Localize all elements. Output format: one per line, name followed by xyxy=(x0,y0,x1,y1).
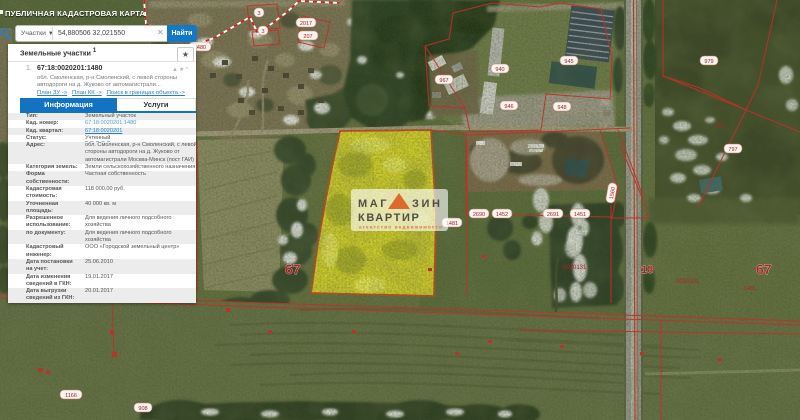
svg-text:797: 797 xyxy=(728,147,737,153)
svg-text:979: 979 xyxy=(704,59,713,65)
svg-text:агентство недвижимости: агентство недвижимости xyxy=(359,226,443,231)
svg-text:967: 967 xyxy=(439,78,448,84)
svg-text:2691: 2691 xyxy=(547,212,559,218)
svg-text:67: 67 xyxy=(756,261,772,277)
svg-text:67: 67 xyxy=(285,261,301,277)
svg-text:ЗИН: ЗИН xyxy=(412,198,443,210)
svg-text:1451: 1451 xyxy=(574,212,586,218)
svg-text:1166: 1166 xyxy=(65,393,77,399)
svg-text:КВАРТИР: КВАРТИР xyxy=(358,212,420,224)
svg-text:1481: 1481 xyxy=(744,286,756,292)
svg-text:908: 908 xyxy=(138,406,147,412)
svg-text:18: 18 xyxy=(641,264,653,276)
svg-text:0020101: 0020101 xyxy=(676,279,700,285)
svg-text:2017: 2017 xyxy=(300,21,312,27)
svg-text:3: 3 xyxy=(261,29,264,35)
svg-text:940: 940 xyxy=(495,67,504,73)
svg-text:207: 207 xyxy=(303,34,312,40)
svg-text:945: 945 xyxy=(564,59,573,65)
svg-text:946: 946 xyxy=(504,104,513,110)
svg-text:МАГ: МАГ xyxy=(358,198,389,210)
svg-text:0020131: 0020131 xyxy=(563,265,587,271)
svg-text:2690: 2690 xyxy=(473,212,485,218)
svg-text:979: 979 xyxy=(715,123,724,129)
svg-text:948: 948 xyxy=(557,105,566,111)
svg-text:3: 3 xyxy=(257,11,260,17)
svg-text:1452: 1452 xyxy=(496,212,508,218)
